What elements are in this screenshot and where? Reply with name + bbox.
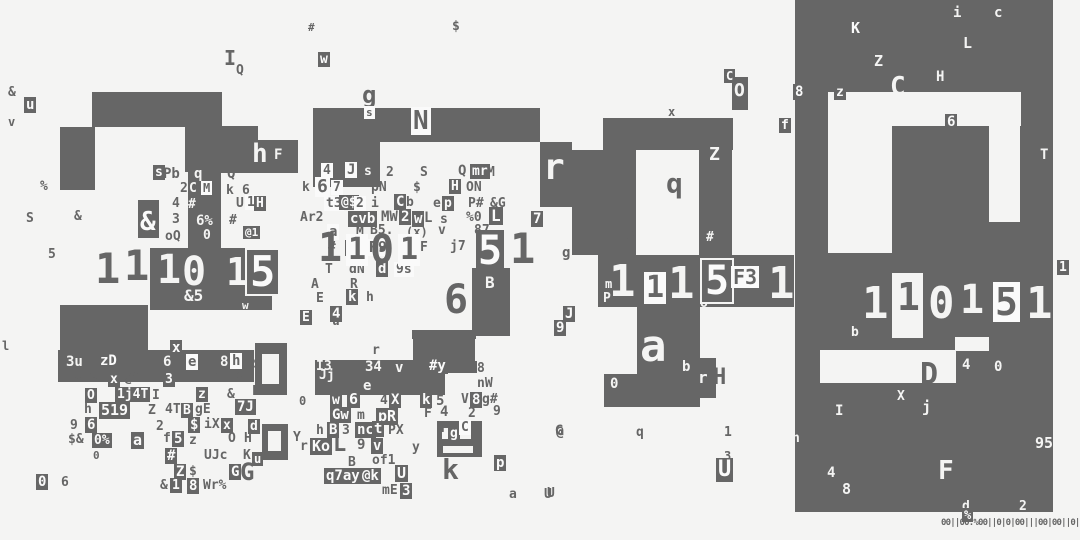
background-cutout: [989, 126, 1020, 222]
noise-glyph: $: [188, 417, 200, 433]
noise-glyph: 1: [318, 228, 342, 268]
noise-glyph: &: [227, 388, 235, 401]
background-cutout: [828, 126, 892, 253]
noise-glyph: u: [332, 315, 340, 328]
noise-glyph: f: [163, 432, 171, 445]
noise-glyph: L: [333, 434, 346, 456]
noise-glyph: L: [963, 36, 972, 51]
noise-glyph: Q: [458, 164, 466, 178]
noise-glyph: k: [346, 289, 358, 305]
noise-glyph: v: [395, 361, 403, 375]
noise-glyph: F3: [731, 266, 759, 288]
noise-glyph: &5: [184, 288, 203, 304]
noise-glyph: C: [394, 194, 406, 210]
noise-glyph: 4T: [165, 403, 181, 416]
noise-glyph: 5: [48, 248, 56, 261]
noise-glyph: 9: [70, 419, 78, 432]
noise-glyph: v: [371, 438, 383, 454]
noise-glyph: 8: [220, 355, 228, 369]
noise-glyph: 6: [85, 417, 97, 433]
noise-glyph: 1: [1057, 260, 1069, 275]
noise-glyph: 1: [1026, 282, 1053, 326]
noise-glyph: m: [357, 409, 365, 422]
noise-glyph: 3: [172, 213, 180, 226]
noise-glyph: @&: [124, 372, 140, 385]
noise-glyph: 1: [157, 250, 181, 290]
noise-glyph: C: [189, 182, 197, 195]
noise-glyph: UJc: [204, 449, 227, 462]
noise-glyph: 1: [124, 245, 149, 287]
noise-glyph: 9: [554, 320, 566, 336]
noise-glyph: @: [556, 426, 564, 439]
noise-glyph: r: [452, 361, 460, 374]
noise-glyph: L: [489, 207, 503, 225]
noise-glyph: a: [131, 432, 144, 449]
noise-glyph: 9: [357, 438, 365, 452]
noise-glyph: $: [253, 357, 261, 371]
noise-glyph: 34: [365, 360, 382, 374]
noise-glyph: 3: [400, 483, 412, 499]
background-cutout: [262, 354, 279, 384]
noise-glyph: 4: [172, 197, 180, 210]
noise-glyph: @1: [243, 226, 260, 239]
noise-glyph: U: [395, 465, 408, 482]
noise-glyph: u: [24, 97, 36, 113]
noise-glyph: 0%: [92, 433, 112, 448]
background-cutout: [828, 92, 1021, 126]
noise-glyph: 0: [93, 450, 100, 461]
digit-block: [60, 305, 148, 352]
digit-block: [60, 127, 95, 190]
noise-glyph: v: [438, 224, 446, 237]
noise-glyph: U: [236, 197, 244, 210]
noise-glyph: 9: [493, 405, 501, 418]
noise-glyph: 1: [768, 262, 795, 306]
noise-glyph: F: [252, 385, 260, 398]
noise-glyph: n: [792, 432, 800, 445]
noise-glyph: MW: [381, 210, 398, 224]
noise-glyph: h: [84, 403, 92, 416]
digit-block: [699, 150, 732, 255]
noise-glyph: 5: [993, 282, 1020, 322]
digit-block: [604, 374, 637, 407]
noise-glyph: x: [668, 106, 675, 118]
noise-glyph: L: [424, 211, 432, 225]
noise-glyph: 1: [398, 234, 420, 266]
noise-glyph: 7J: [235, 399, 256, 415]
noise-glyph: H: [244, 432, 252, 445]
noise-glyph: c: [994, 6, 1002, 20]
noise-glyph: h: [366, 291, 374, 304]
noise-glyph: O: [228, 432, 236, 445]
noise-glyph: q7ay: [324, 468, 362, 484]
noise-glyph: 0: [994, 360, 1002, 374]
noise-glyph: g: [362, 83, 376, 107]
noise-glyph: 2: [180, 182, 188, 195]
noise-glyph: y: [412, 441, 420, 454]
background-cutout: [268, 431, 281, 451]
noise-glyph: 1: [644, 272, 666, 304]
noise-glyph: #y: [427, 358, 448, 374]
noise-glyph: e: [363, 379, 371, 393]
noise-glyph: E: [300, 310, 312, 325]
noise-glyph: 1: [170, 478, 182, 493]
noise-glyph: B: [181, 403, 193, 418]
captcha-scene: #$IQw&uv%S&5lsPbqQ2CMk64#U1H&36%#oQ0@1hF…: [0, 0, 1080, 540]
noise-glyph: Ko: [310, 438, 332, 455]
noise-glyph: 1: [862, 282, 889, 326]
noise-glyph: Z: [874, 54, 883, 69]
noise-glyph: t: [372, 421, 384, 437]
noise-glyph: 0: [203, 229, 211, 242]
noise-glyph: #: [188, 198, 196, 211]
noise-glyph: I: [835, 404, 843, 418]
noise-glyph: 5: [172, 431, 184, 447]
noise-glyph: u: [437, 422, 445, 435]
noise-glyph: e: [186, 354, 198, 370]
noise-glyph: f: [779, 118, 791, 133]
noise-glyph: oQ: [165, 230, 181, 243]
noise-glyph: &: [138, 208, 158, 236]
noise-glyph: P#: [468, 197, 484, 210]
noise-glyph: w: [318, 52, 330, 67]
noise-glyph: U: [544, 488, 552, 501]
noise-glyph: &: [74, 210, 82, 223]
noise-glyph: A: [311, 278, 319, 291]
noise-glyph: $: [413, 181, 421, 194]
noise-glyph: w: [330, 393, 342, 408]
noise-glyph: $&: [68, 433, 84, 446]
noise-glyph: I: [224, 48, 236, 68]
noise-glyph: 1: [897, 278, 920, 316]
noise-glyph: U: [716, 458, 733, 482]
noise-glyph: O: [734, 82, 745, 100]
noise-glyph: 2: [386, 166, 394, 179]
noise-glyph: O: [85, 388, 97, 403]
noise-glyph: 8: [793, 84, 805, 100]
background-cutout: [443, 446, 473, 453]
digit-block: [443, 361, 477, 373]
noise-glyph: e: [433, 197, 441, 210]
noise-glyph: M: [201, 181, 212, 195]
noise-glyph: Q: [227, 167, 235, 181]
noise-glyph: 6: [347, 391, 360, 408]
noise-glyph: 6: [444, 280, 468, 320]
noise-glyph: 3: [163, 372, 175, 387]
noise-glyph: h: [316, 424, 324, 437]
noise-glyph: S: [26, 212, 34, 225]
noise-glyph: 8: [842, 482, 851, 497]
noise-glyph: 6: [315, 177, 330, 197]
noise-glyph: 6: [163, 355, 171, 369]
noise-glyph: 7: [331, 180, 343, 195]
noise-glyph: #: [706, 231, 714, 244]
noise-glyph: l: [2, 340, 9, 352]
noise-glyph: r: [372, 344, 380, 357]
noise-glyph: &: [8, 86, 16, 99]
noise-glyph: F: [424, 407, 432, 420]
digit-block: [795, 0, 1053, 512]
noise-glyph: k: [442, 456, 459, 484]
noise-glyph: B: [485, 275, 495, 291]
noise-glyph: 5: [476, 230, 504, 272]
noise-glyph: F: [938, 458, 954, 484]
noise-glyph: 1j4T: [115, 387, 150, 402]
noise-glyph: 1: [346, 234, 368, 266]
noise-glyph: 2: [468, 407, 476, 420]
noise-glyph: x: [108, 372, 120, 387]
noise-glyph: g: [562, 246, 570, 260]
noise-glyph: T: [1040, 148, 1048, 162]
noise-glyph: 31: [210, 372, 226, 385]
noise-glyph: p: [442, 196, 454, 211]
noise-glyph: Pb: [163, 167, 180, 181]
noise-glyph: Z: [148, 404, 156, 417]
noise-glyph: a: [509, 488, 517, 501]
noise-glyph: 1: [724, 426, 732, 439]
noise-glyph: 3u: [66, 355, 83, 369]
noise-glyph: A: [627, 230, 635, 243]
noise-glyph: 1: [668, 262, 695, 306]
noise-glyph: Q: [236, 64, 244, 77]
noise-glyph: k: [226, 184, 234, 197]
noise-glyph: 8: [477, 362, 485, 375]
noise-glyph: s: [364, 165, 372, 178]
noise-glyph: H: [449, 179, 461, 194]
noise-glyph: z: [189, 434, 197, 447]
noise-glyph: h: [252, 141, 268, 167]
noise-glyph: k: [302, 181, 310, 194]
noise-glyph: Wr%: [203, 479, 226, 492]
noise-glyph: a: [640, 325, 667, 369]
noise-glyph: 5: [245, 248, 280, 296]
binary-caption: 00||00.%00||0|0|00|||00|00||0|0|: [941, 519, 1080, 528]
noise-glyph: D: [920, 360, 938, 390]
noise-glyph: gE: [195, 403, 211, 416]
noise-glyph: M: [487, 166, 495, 179]
noise-glyph: v: [8, 116, 15, 128]
digit-block: [92, 92, 222, 127]
noise-glyph: x: [170, 340, 182, 356]
noise-glyph: 2: [1019, 500, 1027, 513]
noise-glyph: I: [152, 389, 160, 402]
noise-glyph: 0: [299, 395, 306, 407]
noise-glyph: H: [713, 367, 726, 389]
noise-glyph: X: [897, 390, 905, 403]
noise-glyph: b: [851, 326, 859, 339]
noise-glyph: j7: [450, 240, 466, 253]
noise-glyph: z: [834, 85, 846, 100]
noise-glyph: 95: [1035, 436, 1053, 451]
noise-glyph: J: [345, 162, 357, 178]
noise-glyph: z: [196, 387, 208, 402]
noise-glyph: F: [274, 148, 282, 162]
noise-glyph: w: [242, 300, 249, 311]
noise-glyph: 6: [61, 476, 69, 489]
noise-glyph: E: [316, 292, 324, 305]
noise-glyph: %: [40, 180, 48, 193]
noise-glyph: 0: [370, 230, 394, 270]
noise-glyph: 0: [928, 282, 955, 326]
noise-glyph: $: [189, 465, 197, 478]
noise-glyph: r: [300, 440, 308, 453]
noise-glyph: ON: [466, 181, 482, 194]
noise-glyph: 1: [609, 260, 636, 304]
noise-glyph: X: [389, 392, 401, 408]
noise-glyph: 1: [960, 280, 984, 320]
noise-glyph: zD: [98, 353, 119, 369]
noise-glyph: q: [666, 170, 683, 198]
noise-glyph: 1: [95, 248, 120, 290]
noise-glyph: 5: [700, 258, 734, 304]
noise-glyph: 6%: [196, 214, 213, 228]
noise-glyph: K: [849, 20, 862, 37]
noise-glyph: b: [682, 360, 690, 374]
noise-glyph: i: [371, 197, 379, 210]
noise-glyph: 8: [187, 478, 199, 494]
noise-glyph: 2: [399, 209, 411, 225]
noise-glyph: F: [420, 241, 428, 254]
noise-glyph: q: [194, 167, 202, 181]
noise-glyph: H: [936, 70, 944, 84]
noise-glyph: q: [636, 426, 644, 439]
noise-glyph: #: [308, 22, 315, 33]
noise-glyph: H: [254, 196, 266, 211]
noise-glyph: mE: [382, 484, 398, 497]
noise-glyph: of1: [372, 454, 395, 467]
noise-glyph: 0: [36, 474, 48, 490]
noise-glyph: 6: [945, 114, 957, 130]
noise-glyph: s: [364, 106, 375, 119]
noise-glyph: j: [922, 400, 931, 415]
noise-glyph: 4: [827, 466, 835, 480]
noise-glyph: @k: [360, 468, 381, 484]
noise-glyph: b: [406, 196, 414, 209]
noise-glyph: nW: [477, 377, 493, 390]
noise-glyph: r: [543, 150, 565, 186]
noise-glyph: 4: [380, 394, 388, 407]
noise-glyph: h: [230, 353, 242, 369]
noise-glyph: iX: [204, 418, 220, 431]
noise-glyph: V: [461, 393, 469, 406]
noise-glyph: C: [890, 74, 906, 100]
noise-glyph: 2: [354, 196, 366, 211]
noise-glyph: #: [165, 448, 177, 464]
noise-glyph: r: [698, 370, 708, 386]
background-cutout: [955, 337, 989, 351]
noise-glyph: &: [160, 479, 168, 492]
noise-glyph: C: [459, 420, 471, 435]
noise-glyph: i: [953, 6, 961, 20]
noise-glyph: p: [494, 455, 506, 471]
noise-glyph: Z: [709, 146, 720, 164]
noise-glyph: Jj: [319, 369, 335, 382]
noise-glyph: 8: [236, 372, 244, 385]
noise-glyph: N: [411, 107, 431, 135]
noise-glyph: Gw: [330, 407, 351, 423]
noise-glyph: 4: [962, 358, 970, 372]
noise-glyph: #: [229, 214, 237, 227]
noise-glyph: 4: [440, 405, 448, 419]
noise-glyph: 519: [99, 402, 130, 419]
noise-glyph: vi%: [74, 372, 97, 385]
noise-glyph: 0: [610, 377, 618, 391]
noise-glyph: PX: [388, 424, 404, 437]
noise-glyph: S: [420, 166, 428, 179]
noise-glyph: 1: [510, 228, 535, 270]
noise-glyph: $: [452, 20, 460, 33]
noise-glyph: pN: [371, 181, 387, 194]
noise-glyph: G: [240, 460, 254, 484]
